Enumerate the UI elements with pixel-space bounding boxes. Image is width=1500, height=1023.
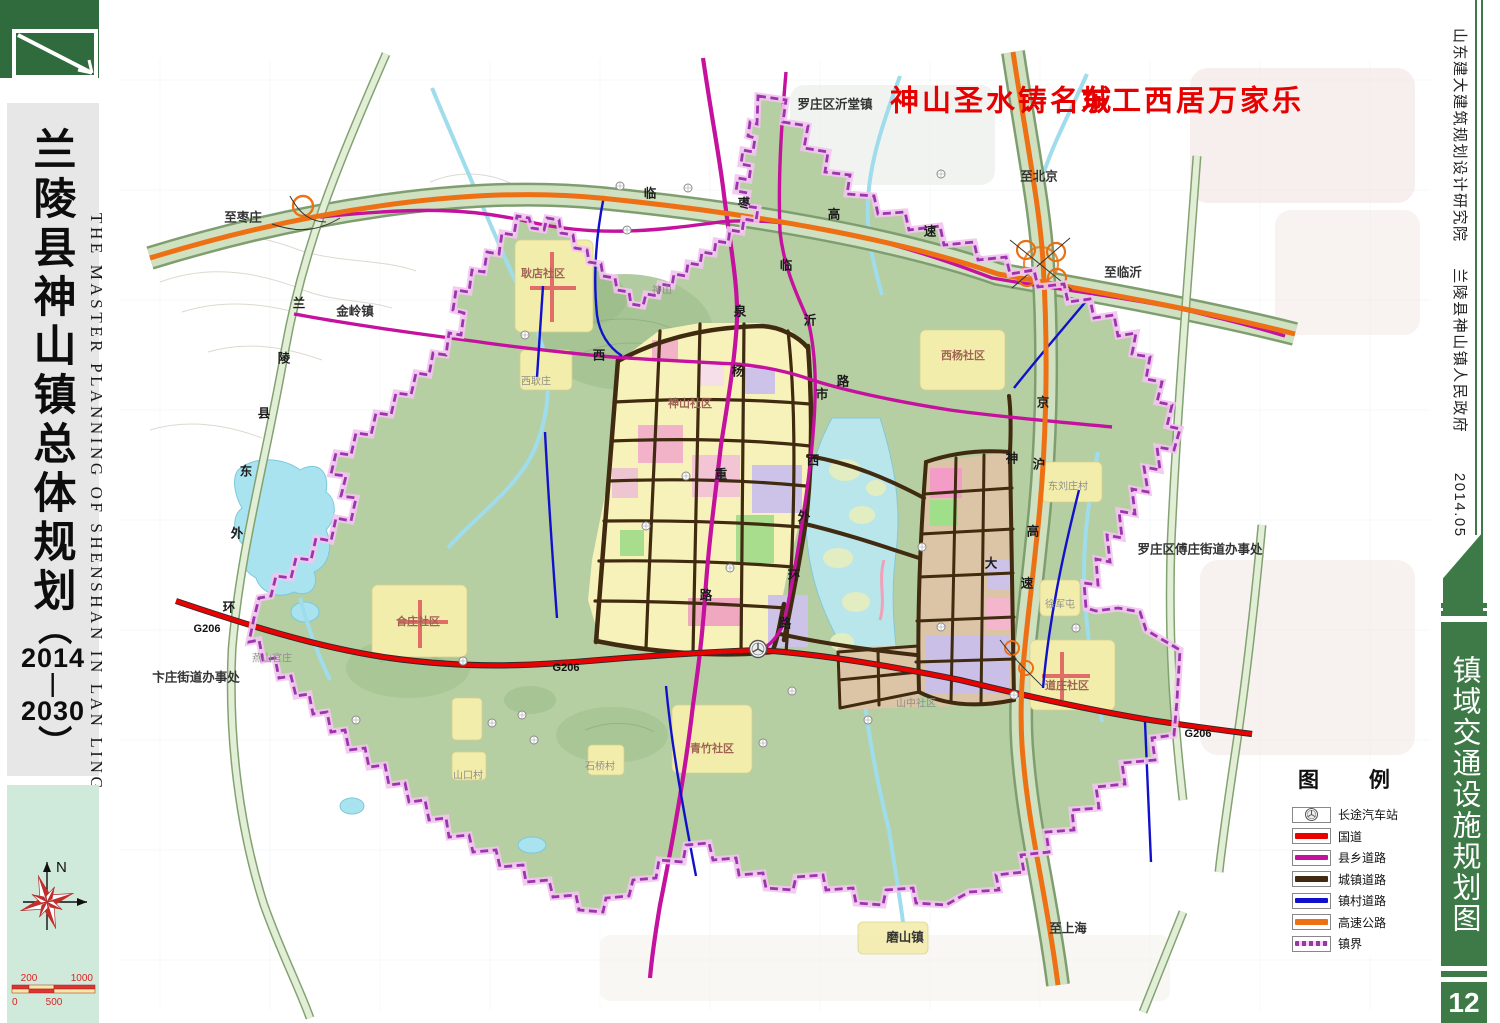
- institute-name: 山东建大建筑规划设计研究院: [1451, 28, 1468, 243]
- paren-close: ）: [40, 725, 66, 759]
- community-label: 徐军屯: [1045, 598, 1075, 611]
- village-road-swatch: [1295, 898, 1328, 903]
- year-start: 2014: [21, 643, 85, 674]
- scale-0: 0: [12, 997, 18, 1008]
- road-label: 临: [644, 185, 657, 200]
- road-label: 外: [797, 508, 811, 523]
- road-label: 环: [223, 600, 236, 614]
- legend-item-town-road: 城镇道路: [1292, 869, 1440, 891]
- road-label: 临: [780, 257, 793, 272]
- legend-item-national-road: 国道: [1292, 826, 1440, 848]
- divider-line: [1481, 0, 1483, 535]
- community-label: 山中社区: [896, 697, 936, 710]
- road-label: 京: [1037, 394, 1050, 409]
- legend-label: 镇村道路: [1338, 892, 1386, 909]
- map-label: 罗庄区沂堂镇: [797, 96, 873, 111]
- government-name: 兰陵县神山镇人民政府: [1451, 268, 1468, 433]
- road-label: 陵: [278, 350, 291, 365]
- road-label: 高: [1027, 523, 1040, 538]
- community-label: 西耿庄: [521, 375, 551, 388]
- legend-item-village-road: 镇村道路: [1292, 890, 1440, 912]
- map-label: 至北京: [1020, 168, 1058, 183]
- road-label-g206: G206: [1185, 728, 1212, 740]
- slogan-text: 东工西居万家乐: [1080, 84, 1304, 118]
- legend-item-expressway: 高速公路: [1292, 912, 1440, 934]
- road-label: 路: [837, 373, 850, 388]
- scale-200: 200: [21, 973, 38, 984]
- sheet-title-bar: 镇域交通设施规划图: [1441, 622, 1487, 966]
- road-label: 大: [985, 555, 998, 570]
- planning-map-canvas: 罗庄区沂堂镇 至枣庄 金岭镇 至北京 至临沂 卞庄街道办事处 罗庄区傅庄街道办事…: [0, 0, 1500, 1023]
- compass-panel: N 200 1000 0 500: [7, 785, 99, 1023]
- paren-open: （: [40, 611, 66, 645]
- expressway-swatch: [1295, 919, 1328, 925]
- year-dash: —: [44, 673, 62, 697]
- community-label: 西杨社区: [941, 348, 985, 362]
- compass-rose: N: [7, 840, 99, 965]
- page-number: 12: [1441, 982, 1487, 1023]
- map-label: 罗庄区傅庄街道办事处: [1137, 541, 1263, 556]
- legend-label: 县乡道路: [1338, 849, 1386, 866]
- bus-station-icon: [1292, 807, 1331, 823]
- road-label: 环: [788, 568, 801, 582]
- sheet-title: 镇域交通设施规划图: [1443, 655, 1485, 934]
- road-label: 杨: [732, 363, 745, 378]
- road-label-g206: G206: [194, 623, 221, 635]
- credits-panel: 山东建大建筑规划设计研究院 兰陵县神山镇人民政府 2014.05 镇域交通设施规…: [1430, 0, 1500, 1023]
- road-label: 沂: [804, 312, 817, 327]
- map-label: 至临沂: [1104, 264, 1142, 279]
- compass-north-label: N: [56, 859, 67, 876]
- boundary-swatch: [1295, 941, 1328, 946]
- legend-label: 镇界: [1338, 935, 1362, 952]
- credits-text: 山东建大建筑规划设计研究院 兰陵县神山镇人民政府 2014.05: [1450, 28, 1471, 538]
- legend-item-county-road: 县乡道路: [1292, 847, 1440, 869]
- road-label: 神: [1006, 450, 1019, 465]
- community-label: 耿店社区: [521, 266, 565, 280]
- road-label: 高: [828, 206, 841, 221]
- community-label: 道庄社区: [1045, 678, 1089, 692]
- legend-label: 国道: [1338, 828, 1362, 845]
- community-label: 神山: [652, 284, 672, 297]
- road-label: 速: [924, 223, 937, 238]
- flag-shape: [1443, 532, 1483, 612]
- road-label-g206: G206: [553, 662, 580, 674]
- road-label: 西: [807, 453, 820, 467]
- road-label: 县: [258, 406, 271, 420]
- divider-line: [1475, 0, 1477, 535]
- legend-label: 长途汽车站: [1338, 806, 1398, 823]
- scale-1000: 1000: [71, 973, 94, 984]
- community-label: 合庄社区: [396, 614, 440, 628]
- map-label: 卞庄街道办事处: [152, 669, 240, 684]
- map-label: 至枣庄: [224, 209, 262, 224]
- community-label: 山口村: [453, 769, 483, 782]
- town-road-swatch: [1295, 876, 1328, 882]
- year-end: 2030: [21, 696, 85, 727]
- community-label: 东刘庄村: [1048, 480, 1088, 493]
- road-label: 速: [1021, 575, 1034, 590]
- plan-title-en: THE MASTER PLANNING OF SHENSHAN IN LAN L…: [86, 213, 106, 792]
- legend-item-bus-station: 长途汽车站: [1292, 804, 1440, 826]
- plan-title-cn: 兰陵县神山镇总体规划: [25, 127, 77, 617]
- road-label: 西: [593, 348, 606, 362]
- community-label: 青竹社区: [690, 741, 734, 755]
- community-label: 石桥村: [585, 760, 615, 773]
- road-label: 枣: [737, 195, 751, 210]
- legend-label: 高速公路: [1338, 914, 1386, 931]
- road-label: 重: [715, 466, 728, 481]
- bus-station-icon: [750, 641, 767, 658]
- legend-item-boundary: 镇界: [1292, 933, 1440, 955]
- legend-label: 城镇道路: [1338, 871, 1386, 888]
- road-label: 泉: [733, 303, 747, 318]
- divider-bar: [1441, 603, 1487, 608]
- logo-icon: [0, 0, 99, 78]
- road-label: 兰: [293, 295, 306, 310]
- scale-bar: 200 1000 0 500: [7, 970, 99, 1014]
- institute-logo: [0, 0, 99, 78]
- legend-title: 图 例: [1298, 764, 1440, 794]
- map-legend: 图 例 长途汽车站 国道 县乡道路 城镇道路 镇村道路 高速公路 镇界: [1292, 764, 1440, 955]
- community-label: 燕山官庄: [252, 652, 292, 665]
- national-road-swatch: [1295, 833, 1328, 839]
- road-label: 外: [230, 525, 244, 540]
- map-label: 金岭镇: [335, 303, 374, 318]
- road-label: 东: [240, 463, 253, 478]
- map-label: 磨山镇: [885, 929, 924, 944]
- road-label: 市: [816, 386, 829, 401]
- scale-500: 500: [46, 997, 63, 1008]
- plan-date: 2014.05: [1451, 473, 1468, 538]
- title-panel: 兰陵县神山镇总体规划 （ 2014 — 2030 ） THE MASTER PL…: [7, 103, 99, 776]
- road-label: 沪: [1033, 456, 1046, 471]
- divider-bar: [1441, 971, 1487, 977]
- map-label: 至上海: [1049, 920, 1087, 935]
- county-road-swatch: [1295, 855, 1328, 860]
- divider-bar: [1441, 611, 1487, 616]
- road-label: 路: [779, 615, 792, 630]
- community-label: 神山社区: [668, 396, 712, 410]
- road-label: 路: [700, 587, 713, 602]
